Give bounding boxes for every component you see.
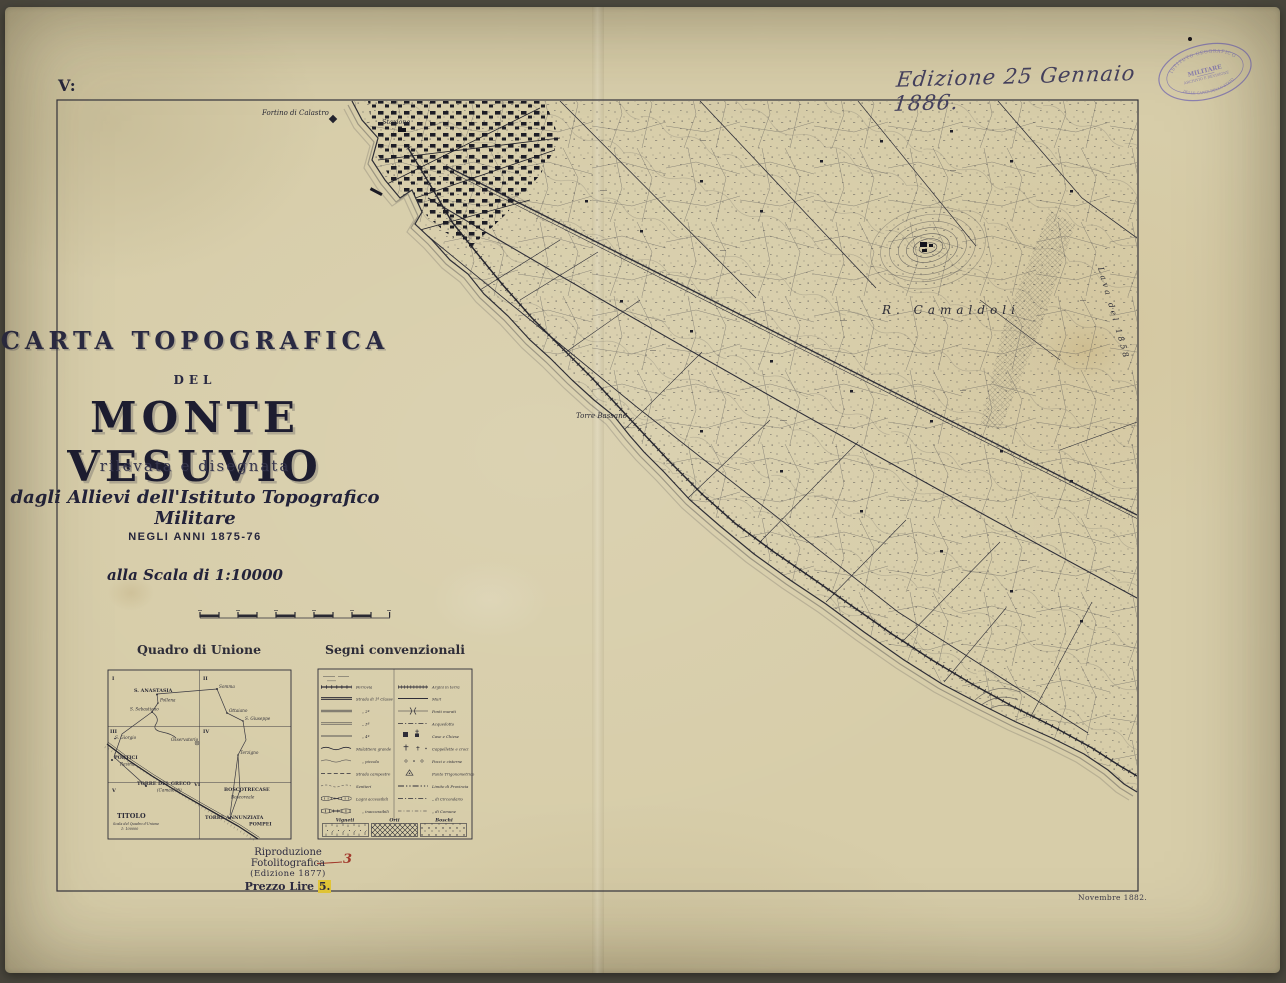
imprint-price: Prezzo Lire 5. — [218, 880, 358, 893]
price-label: Prezzo Lire — [245, 880, 314, 893]
quadro-place: Resina — [119, 762, 135, 767]
title-sub1: rilevata e disegnata — [0, 457, 390, 475]
ink-speck — [1188, 37, 1192, 41]
legend-label: Strada campestre — [356, 771, 391, 776]
legend-label: Mulattiera grande — [355, 746, 392, 751]
imprint-line2: (Edizione 1877) — [218, 869, 358, 879]
quadro-title: Quadro di Unione — [137, 642, 261, 657]
quadro-place: S. Giuseppe — [245, 716, 271, 721]
title-sub2: dagli Allievi dell'Istituto Topografico … — [0, 487, 390, 529]
photo-of-map-sheet: Lava del 1858 Fortino di Calastro Stazio… — [0, 0, 1286, 983]
quadro-place: PORTICI — [114, 755, 138, 761]
quadro-titolo-sub: Scala del Quadro d'Unione — [113, 822, 159, 826]
print-date-note: Novembre 1882. — [1078, 893, 1147, 902]
quadrant-numeral: VI — [193, 782, 201, 788]
quadro-place: TORRE DEL GRECO — [137, 781, 191, 787]
quadrant-numeral: II — [203, 676, 208, 682]
quadro-place: Terzigno — [240, 750, 259, 755]
price-old-highlighted: 5. — [318, 880, 331, 893]
map-label-camaldoli: R. Camaldoli — [881, 303, 1020, 317]
legend-label: Cappellette e croci — [432, 746, 469, 751]
legend-label: „ di Comune — [432, 809, 457, 814]
legend-label: Lagni accessibili — [355, 796, 389, 801]
legend-label: Acquedotto — [431, 721, 455, 726]
quadro-place: Ottaiano — [229, 708, 248, 713]
legend-title: Segni convenzionali — [325, 642, 465, 657]
map-label-fort: Fortino di Calastro — [261, 109, 329, 117]
imprint-block: Riproduzione Fotolitografica (Edizione 1… — [218, 847, 358, 893]
handwritten-edition-note: Edizione 25 Gennaio 1886. — [892, 60, 1167, 116]
legend-label: Punto Trigonometrico — [431, 771, 475, 776]
ground-label-vigneti: Vigneti — [336, 818, 355, 824]
quadro-titolo: TITOLO — [117, 812, 146, 820]
title-kind: CARTA TOPOGRAFICA — [0, 326, 390, 355]
quadro-place: (Camaldoli) — [157, 788, 182, 793]
fort-symbol — [329, 115, 337, 123]
quadro-place: Boscoreale — [230, 795, 255, 800]
segni-convenzionali: Segni convenzionali — [318, 642, 475, 839]
legend-right-glyphs — [403, 730, 427, 775]
legend-left-symbols — [321, 687, 352, 813]
quadro-place: S. Sebastiano — [130, 707, 159, 712]
quadro-place: Pollena — [159, 698, 176, 703]
title-years: NEGLI ANNI 1875-76 — [0, 531, 390, 543]
quadro-place: Osservatorio — [171, 737, 199, 742]
quadro-place: Somma — [219, 684, 235, 689]
ground-label-orti: Orti — [389, 818, 400, 824]
map-title: MONTE VESUVIO — [0, 393, 390, 491]
legend-label: Muri — [431, 696, 442, 701]
legend-label: „ 3ª — [362, 721, 370, 726]
legend-label: Argini in terra — [431, 684, 460, 689]
quadrant-numeral: I — [112, 676, 115, 682]
legend-right-symbols — [398, 687, 428, 811]
quadro-place: BOSCOTRECASE — [224, 787, 270, 793]
legend-label: Strada di 1ª Classe — [356, 696, 394, 701]
quadro-place: TORRE ANNUNZIATA — [205, 815, 264, 821]
legend-label: Ferrovia — [355, 684, 373, 689]
quadro-titolo-scale: 1: 100000 — [121, 827, 139, 831]
ground-swatches — [323, 824, 467, 837]
ground-label-boschi: Boschi — [434, 818, 453, 824]
legend-microcaptions — [323, 676, 349, 681]
title-scale: alla Scala di 1:10000 — [0, 566, 390, 584]
archive-stamp: ISTITUTO GEOGRAFICO MILITARE ARCHIVIO E … — [1153, 34, 1257, 109]
quadrant-numeral: V — [111, 788, 116, 794]
imprint-line1: Riproduzione Fotolitografica — [218, 847, 358, 869]
legend-label: „ 2ª — [362, 709, 370, 714]
scale-bar — [198, 610, 391, 618]
legend-label: „ 4ª — [362, 734, 370, 739]
legend-label: Limite di Provincia — [431, 784, 469, 789]
legend-label: Pozzi e cisterne — [431, 759, 463, 764]
quadro-place: S. Giorgio — [115, 735, 137, 740]
station-building — [398, 128, 406, 132]
legend-label: Case e Chiese — [432, 734, 460, 739]
map-label-station: Stazione — [382, 118, 411, 126]
legend-label: Sentieri — [356, 784, 372, 789]
quadro-crater-center — [196, 742, 197, 743]
sheet-number: V: — [58, 76, 77, 95]
quadrant-numeral: IV — [203, 729, 209, 735]
quadro-place: POMPEI — [249, 822, 272, 828]
quadro-place: S. ANASTASIA — [134, 688, 173, 694]
quadro-di-unione: Quadro di Unione I II III IV V VI — [105, 642, 291, 841]
title-del: DEL — [0, 373, 390, 387]
handwritten-corrected-price: 3 — [343, 852, 352, 867]
main-map: Lava del 1858 Fortino di Calastro Stazio… — [261, 101, 1138, 800]
legend-label: „ di Circondario — [432, 796, 464, 801]
map-label-torre-bassano: Torre Bassano — [576, 412, 627, 420]
legend-label: Ponti murati — [431, 709, 457, 714]
legend-label: „ piccola — [362, 759, 380, 764]
legend-right-glyph-outlines — [405, 760, 423, 775]
legend-label: „ inaccessibili — [362, 809, 390, 814]
